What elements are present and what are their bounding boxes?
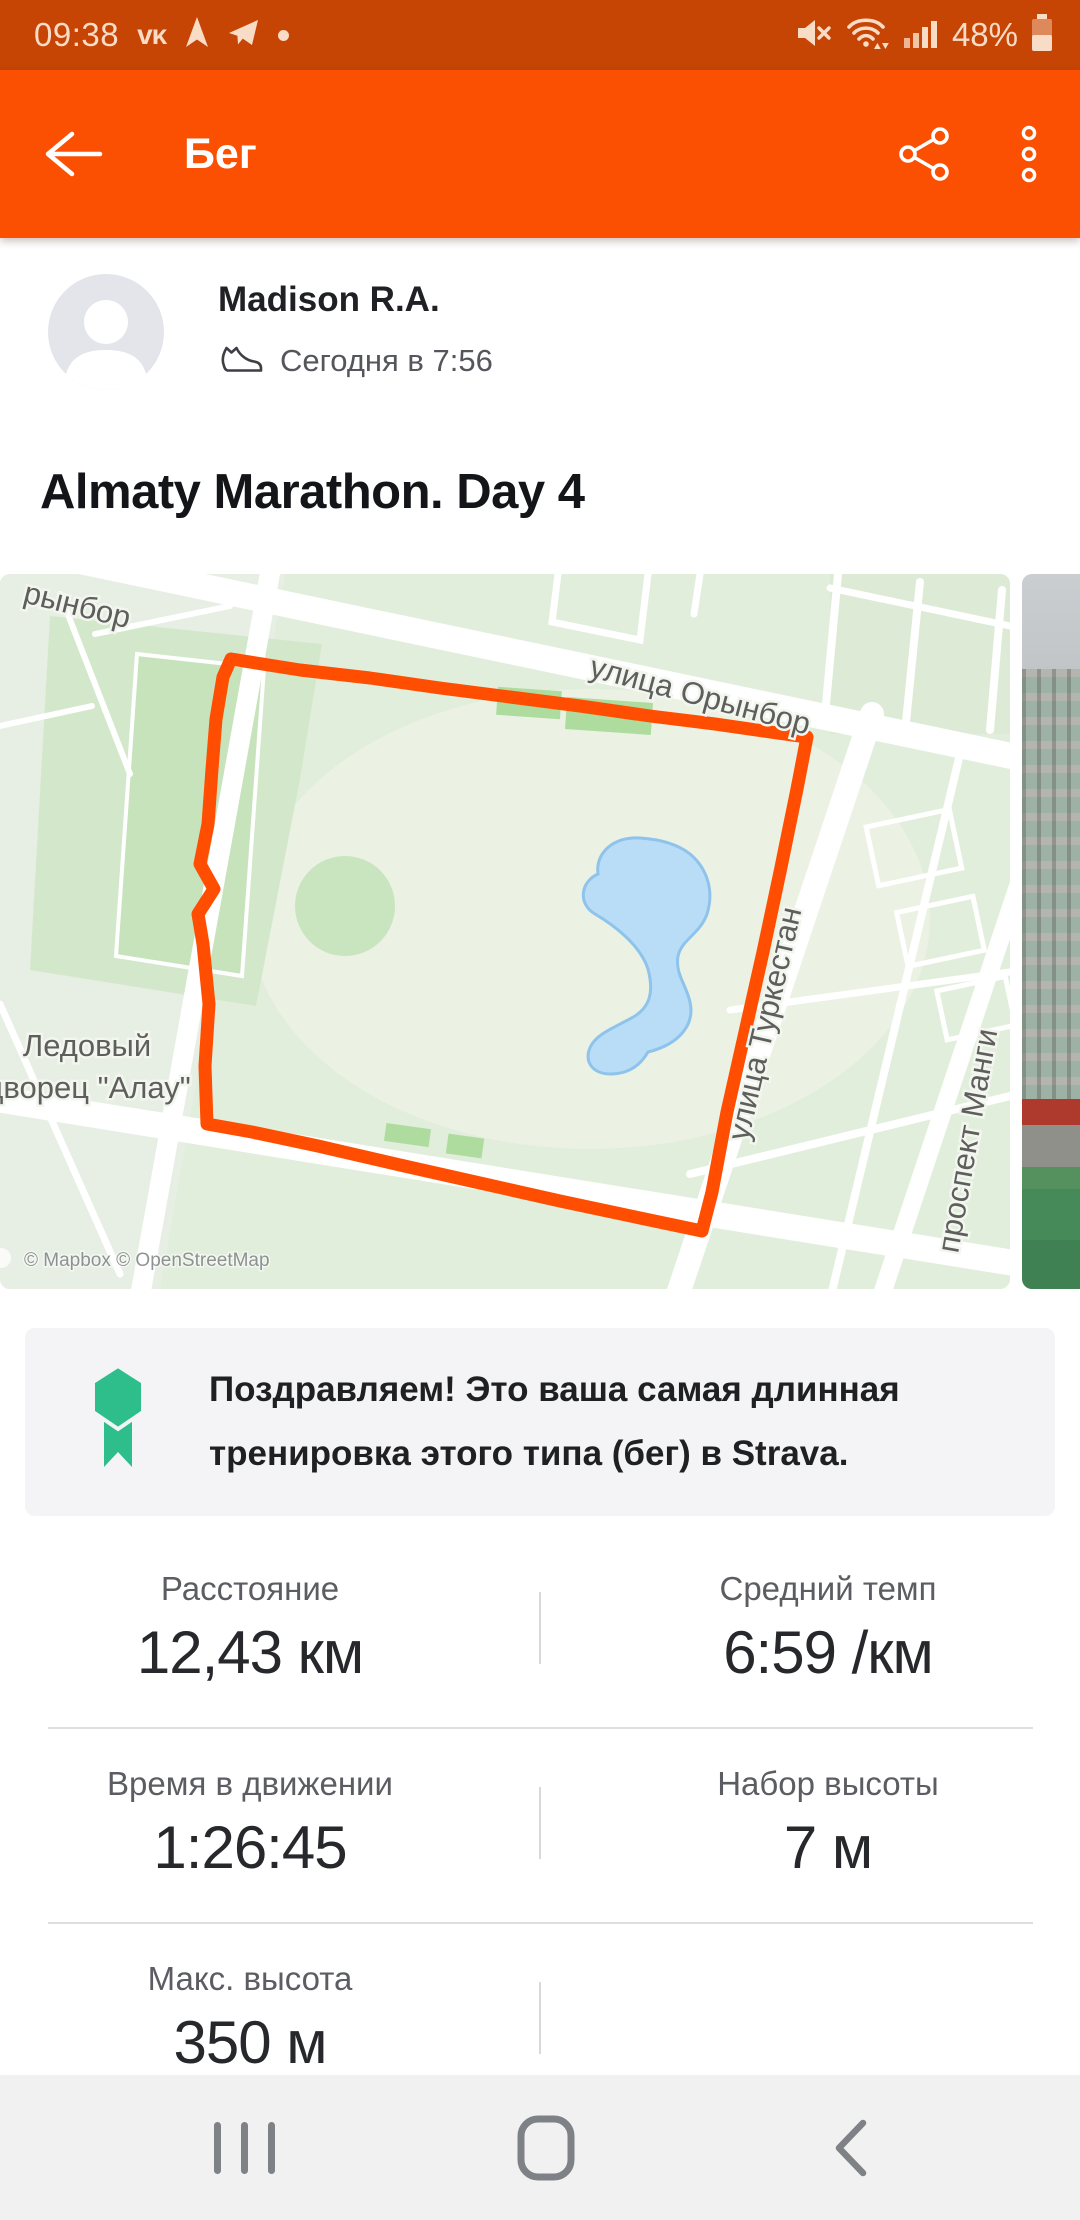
nav-back-button[interactable] [780, 2075, 920, 2220]
activity-header: Madison R.A. Сегодня в 7:56 [0, 238, 1080, 420]
photo-sign [1022, 1099, 1080, 1125]
stat-distance: Расстояние 12,43 км [0, 1570, 500, 1687]
overflow-menu-button[interactable] [1020, 125, 1038, 183]
overflow-menu-icon [1020, 125, 1038, 183]
run-shoe-icon [218, 340, 264, 381]
poi-label-line1: Ледовый [23, 1028, 151, 1063]
share-icon [898, 126, 954, 182]
mute-icon [796, 17, 834, 54]
stats-row-1: Расстояние 12,43 км Средний темп 6:59 /к… [0, 1534, 1080, 1727]
back-chevron-icon [832, 2118, 868, 2178]
stat-max-elevation: Макс. высота 350 м [0, 1960, 500, 2077]
divider [539, 1592, 541, 1664]
battery-icon [1030, 14, 1054, 57]
recents-icon [214, 2122, 276, 2174]
share-button[interactable] [898, 126, 954, 182]
back-button[interactable] [42, 130, 106, 178]
photo-sky [1022, 574, 1080, 669]
wifi-icon [846, 14, 892, 57]
medal-icon [89, 1365, 147, 1480]
person-icon [48, 286, 164, 390]
activity-title: Almaty Marathon. Day 4 [40, 464, 1040, 520]
page-title: Бег [184, 130, 257, 179]
media-row: рынбор улица Орынбор улица Туркестан про… [0, 574, 1080, 1289]
clock: 09:38 [34, 16, 119, 54]
photo-building-base [1022, 1125, 1080, 1167]
location-arrow-icon [184, 16, 210, 55]
photo-building [1022, 669, 1080, 1099]
stats-row-2: Время в движении 1:26:45 Набор высоты 7 … [0, 1729, 1080, 1922]
stat-elevation-gain: Набор высоты 7 м [500, 1765, 1080, 1882]
route-map[interactable]: рынбор улица Орынбор улица Туркестан про… [0, 574, 1010, 1289]
avatar[interactable] [48, 274, 164, 390]
recents-button[interactable] [175, 2075, 315, 2220]
map-attribution: © Mapbox © OpenStreetMap [24, 1250, 270, 1271]
battery-percent: 48% [952, 16, 1018, 54]
activity-photo-thumbnail[interactable] [1022, 574, 1080, 1289]
stats-grid: Расстояние 12,43 км Средний темп 6:59 /к… [0, 1534, 1080, 2117]
system-nav-bar [0, 2075, 1080, 2220]
app-bar: Бег [0, 70, 1080, 238]
home-button[interactable] [476, 2075, 616, 2220]
stat-avg-pace: Средний темп 6:59 /км [500, 1570, 1080, 1687]
home-icon [517, 2115, 575, 2181]
achievement-banner: Поздравляем! Это ваша самая длинная трен… [25, 1328, 1055, 1516]
stat-moving-time: Время в движении 1:26:45 [0, 1765, 500, 1882]
photo-field [1022, 1167, 1080, 1289]
achievement-message: Поздравляем! Это ваша самая длинная трен… [209, 1358, 989, 1486]
notification-dot-icon [278, 30, 289, 41]
poi-label-line2: дворец "Алау" [0, 1070, 191, 1105]
activity-timestamp: Сегодня в 7:56 [280, 343, 493, 379]
author-name[interactable]: Madison R.A. [218, 280, 493, 320]
divider [539, 1982, 541, 2054]
status-bar: 09:38 ᴠᴋ [0, 0, 1080, 70]
signal-icon [904, 18, 940, 53]
stat-empty [500, 1960, 1080, 2077]
vk-notification-icon: ᴠᴋ [137, 19, 166, 51]
telegram-notification-icon [228, 19, 260, 52]
divider [539, 1787, 541, 1859]
